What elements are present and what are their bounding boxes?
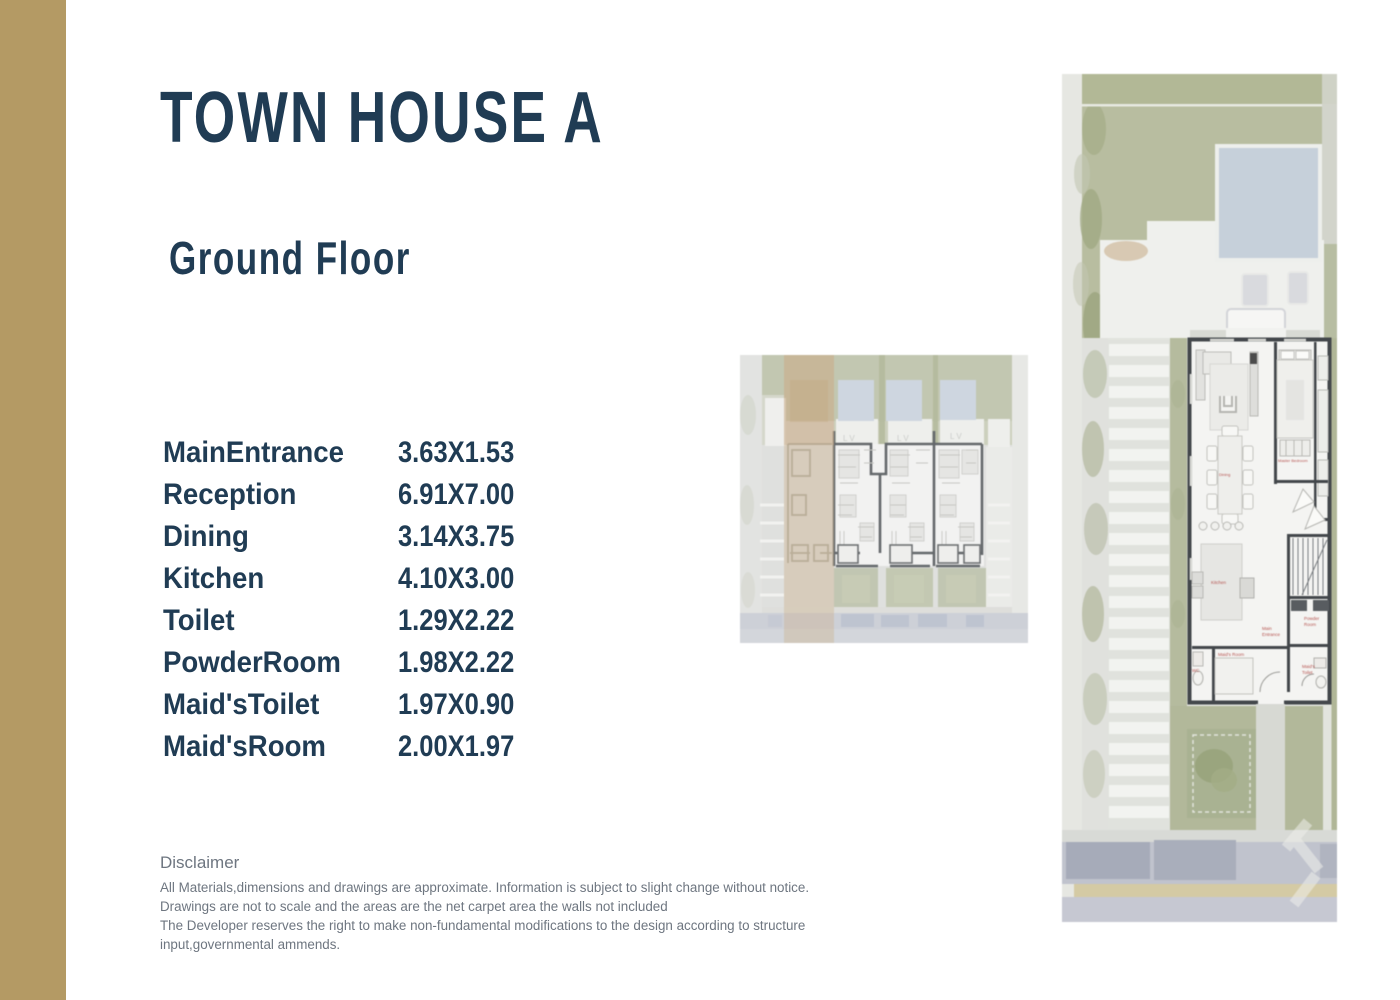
svg-text:Maid's Room: Maid's Room	[1218, 652, 1244, 657]
svg-text:Main: Main	[1262, 626, 1272, 631]
svg-text:Powder: Powder	[1304, 616, 1320, 621]
svg-text:Master Bedroom: Master Bedroom	[1278, 458, 1308, 463]
svg-text:Toilet: Toilet	[1302, 670, 1313, 675]
svg-text:Kitchen: Kitchen	[1211, 580, 1227, 585]
svg-text:WC: WC	[1192, 668, 1200, 673]
svg-text:Entrance: Entrance	[1262, 632, 1281, 637]
svg-text:Maid's: Maid's	[1302, 664, 1316, 669]
svg-text:Dining: Dining	[1219, 472, 1230, 477]
svg-text:Room: Room	[1304, 622, 1316, 627]
